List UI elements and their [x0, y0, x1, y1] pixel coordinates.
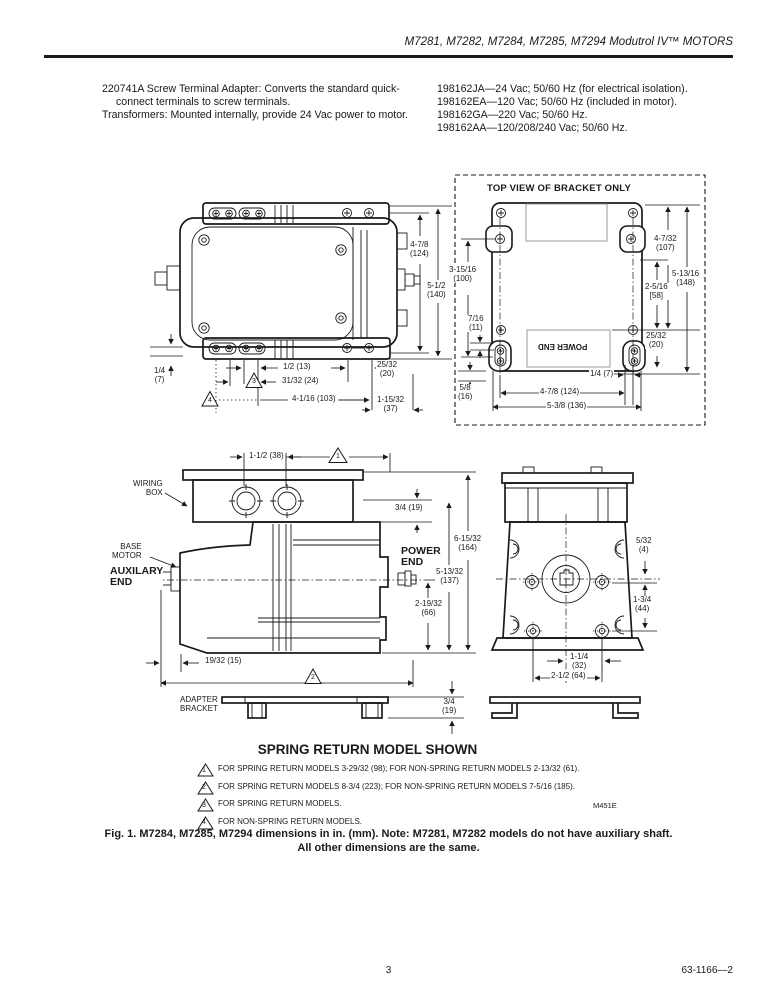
page-header-title: M7281, M7282, M7284, M7285, M7294 Modutr… — [405, 36, 733, 48]
note-number: 1 — [202, 767, 206, 774]
dim-6-15-32-164: 6-15/32 (164) — [453, 535, 482, 552]
dim-5-1-2-140: 5-1/2 (140) — [426, 282, 447, 299]
figure-notes: SPRING RETURN MODEL SHOWN 1 FOR SPRING R… — [160, 742, 580, 829]
dim-2-1-2-64: 2-1/2 (64) — [550, 672, 587, 681]
adapter-bracket-label: ADAPTER BRACKET — [180, 696, 218, 713]
caption-line-1: Fig. 1. M7284, M7285, M7294 dimensions i… — [0, 828, 777, 842]
note-number: 3 — [202, 802, 206, 809]
note-item: 4 FOR NON-SPRING RETURN MODELS. — [197, 816, 580, 829]
intro-paragraph: Transformers: Mounted internally, provid… — [102, 109, 432, 122]
document-number: 63-1166—2 — [681, 965, 733, 976]
dim-5-13-16-148: 5-13/16 (148) — [671, 270, 700, 287]
note-item: 2 FOR SPRING RETURN MODELS 8-3/4 (223); … — [197, 781, 580, 794]
note-text: FOR SPRING RETURN MODELS 8-3/4 (223); FO… — [218, 781, 575, 793]
note-item: 1 FOR SPRING RETURN MODELS 3-29/32 (98);… — [197, 763, 580, 776]
dim-1-4-7: 1/4 (7) — [153, 367, 166, 384]
note-number: 2 — [202, 784, 206, 791]
intro-line: 198162GA—220 Vac; 50/60 Hz. — [437, 109, 737, 122]
intro-line: 198162EA—120 Vac; 50/60 Hz (included in … — [437, 96, 737, 109]
dim-4-7-32-107: 4-7/32 (107) — [653, 235, 678, 252]
note-item: 3 FOR SPRING RETURN MODELS. — [197, 798, 580, 811]
dim-25-32-20: 25/32 (20) — [376, 361, 398, 378]
note-marker-2: 2 — [305, 674, 321, 681]
drawing-code: M451E — [593, 801, 617, 810]
dim-2-5-16-58: 2-5/16 [58] — [644, 283, 669, 300]
header-rule — [44, 55, 733, 58]
dim-5-32-4: 5/32 (4) — [635, 537, 653, 554]
dim-2-19-32-66: 2-19/32 (66) — [414, 600, 443, 617]
wiring-box-label: WIRING BOX — [133, 480, 163, 497]
figure-caption: Fig. 1. M7284, M7285, M7294 dimensions i… — [0, 828, 777, 855]
dim-1-1-4-32: 1-1/4 (32) — [569, 653, 589, 670]
bracket-view-title: TOP VIEW OF BRACKET ONLY — [487, 183, 631, 194]
base-motor-label: BASE MOTOR — [112, 543, 142, 560]
figure-1-dimension-drawings: 4-7/8 (124) 5-1/2 (140) 1/4 (7) 1/2 (13)… — [0, 170, 777, 735]
dim-3-4-19-side: 3/4 (19) — [394, 504, 424, 513]
note-marker-1: 1 — [330, 453, 346, 460]
intro-left-column: 220741A Screw Terminal Adapter: Converts… — [102, 83, 432, 122]
dim-1-1-2-38: 1-1/2 (38) — [248, 452, 285, 461]
dim-4-7-8-124: 4-7/8 (124) — [409, 241, 430, 258]
dim-3-15-16-100: 3-15/16 (100) — [448, 266, 477, 283]
power-end-label: POWER END — [401, 546, 441, 568]
auxiliary-end-label: AUXILARY END — [110, 566, 163, 588]
note-number: 4 — [202, 819, 206, 826]
intro-line: 198162JA—24 Vac; 50/60 Hz (for electrica… — [437, 83, 737, 96]
dim-3-4-19-bracket-height: 3/4 (19) — [441, 698, 457, 715]
side-view-drawing — [140, 448, 476, 734]
dim-1-15-32-37: 1-15/32 (37) — [376, 396, 405, 413]
dim-4-1-16-103: 4-1/16 (103) — [291, 395, 337, 404]
dim-4-7-8-124-bracket: 4-7/8 (124) — [539, 388, 580, 397]
intro-paragraph: 220741A Screw Terminal Adapter: Converts… — [102, 83, 432, 109]
page-number: 3 — [44, 965, 733, 976]
document-page: M7281, M7282, M7284, M7285, M7294 Modutr… — [0, 0, 777, 1005]
dim-19-32-15: 19/32 (15) — [204, 657, 242, 666]
dim-1-2-13: 1/2 (13) — [282, 363, 312, 372]
dimension-drawing-linework — [0, 170, 777, 735]
intro-right-column: 198162JA—24 Vac; 50/60 Hz (for electrica… — [437, 83, 737, 135]
intro-line: 198162AA—120/208/240 Vac; 50/60 Hz. — [437, 122, 737, 135]
note-marker-4: 4 — [202, 397, 218, 404]
dim-5-13-32-137: 5-13/32 (137) — [435, 568, 464, 585]
dim-7-16-11: 7/16 (11) — [467, 315, 485, 332]
power-end-label-rotated: POWER END — [538, 342, 587, 351]
dim-5-3-8-136: 5-3/8 (136) — [546, 402, 587, 411]
dim-25-32-20-bracket: 25/32 (20) — [645, 332, 667, 349]
dim-31-32-24: 31/32 (24) — [281, 377, 319, 386]
note-text: FOR SPRING RETURN MODELS 3-29/32 (98); F… — [218, 763, 579, 775]
note-text: FOR SPRING RETURN MODELS. — [218, 798, 342, 810]
dim-1-4-7-bracket: 1/4 (7) — [589, 370, 614, 379]
caption-line-2: All other dimensions are the same. — [0, 842, 777, 856]
note-text: FOR NON-SPRING RETURN MODELS. — [218, 816, 362, 828]
dim-1-3-4-44: 1-3/4 (44) — [632, 596, 652, 613]
note-marker-3: 3 — [246, 378, 262, 385]
dim-5-8-16: 5/8 (16) — [457, 384, 473, 401]
notes-heading: SPRING RETURN MODEL SHOWN — [160, 742, 575, 757]
